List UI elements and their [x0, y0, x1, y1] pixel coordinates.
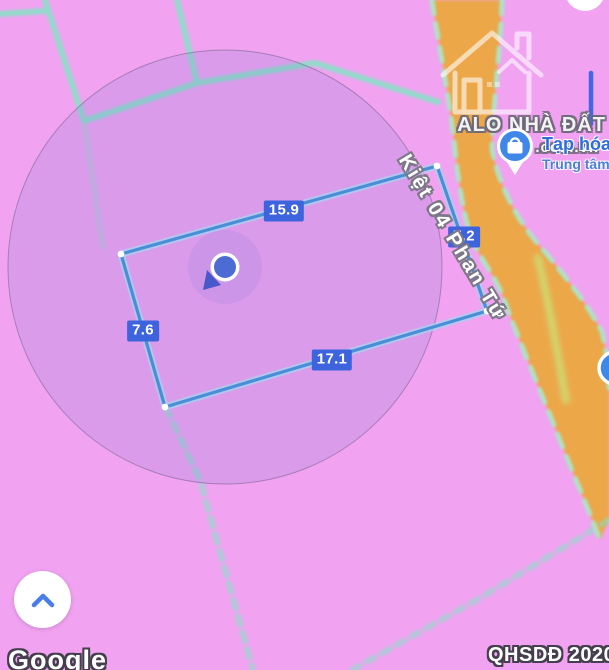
chevron-up-icon [24, 585, 62, 615]
overlay-code-label: QHSDĐ 2020 [488, 644, 609, 667]
measure-label-bottom: 17.1 [312, 350, 352, 371]
store-pin-icon[interactable] [495, 127, 535, 177]
google-logo: Google [8, 645, 107, 670]
house-logo-icon [437, 20, 562, 120]
map-control-partial[interactable] [565, 0, 605, 11]
map-canvas[interactable]: ALO NHÀ ĐẤT .com.vn 15.9 7.2 7.6 17.1 Ki… [0, 0, 609, 670]
location-dot-icon [188, 230, 262, 304]
poi-subtitle[interactable]: Trung tâm [542, 156, 609, 172]
measure-label-top: 15.9 [264, 201, 304, 222]
collapse-sheet-button[interactable] [14, 571, 71, 628]
measure-label-left: 7.6 [127, 321, 159, 342]
poi-name[interactable]: Tạp hóa [542, 134, 609, 155]
